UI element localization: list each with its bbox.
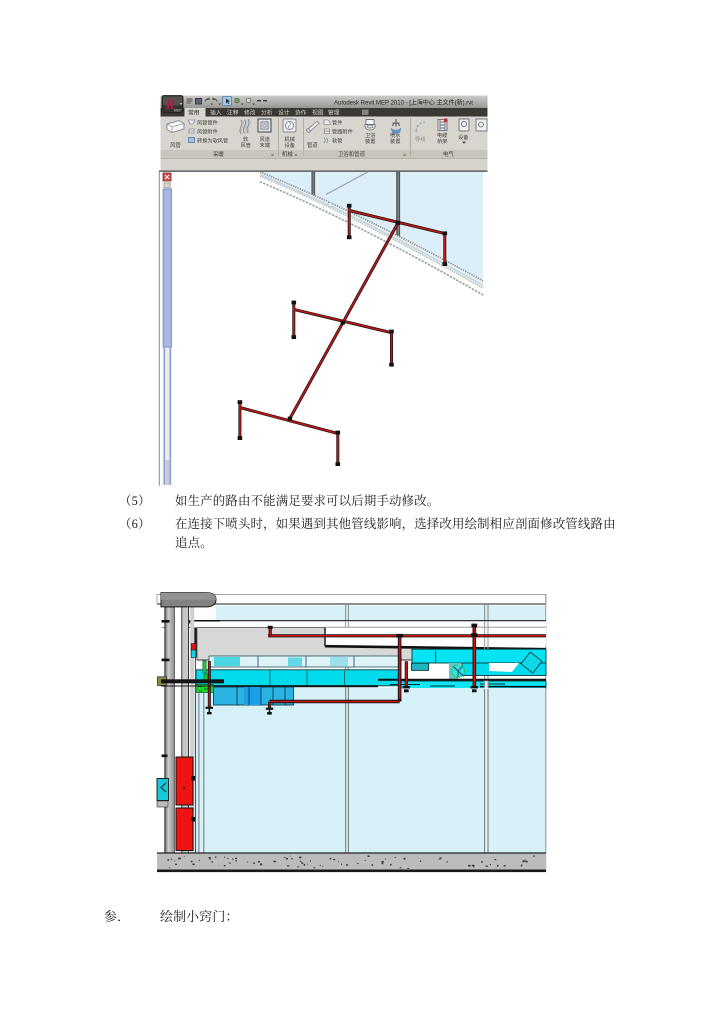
svg-text:风管: 风管 (241, 141, 251, 149)
svg-text:软管: 软管 (332, 137, 342, 145)
svg-text:管件: 管件 (332, 119, 342, 127)
svg-text:卫浴: 卫浴 (365, 131, 376, 139)
svg-text:末端: 末端 (260, 141, 270, 149)
svg-text:采暖: 采暖 (213, 150, 224, 158)
svg-text:管道: 管道 (307, 141, 318, 149)
svg-text:协作: 协作 (295, 109, 307, 117)
svg-text:机械: 机械 (282, 150, 293, 158)
svg-text:软: 软 (243, 135, 248, 143)
svg-text:管理: 管理 (328, 109, 340, 117)
svg-text:电缆: 电缆 (437, 131, 447, 139)
svg-text:管路附件: 管路附件 (332, 128, 353, 136)
svg-text:»: » (403, 153, 406, 159)
svg-text:装置: 装置 (365, 137, 375, 145)
svg-text:修改: 修改 (244, 109, 256, 117)
svg-text:桥架: 桥架 (437, 137, 447, 145)
svg-text:电气: 电气 (443, 150, 454, 158)
svg-text:卫浴和管道: 卫浴和管道 (338, 150, 366, 158)
svg-text:视图: 视图 (312, 109, 324, 117)
svg-text:风道: 风道 (260, 135, 270, 143)
svg-text:装置: 装置 (390, 137, 400, 145)
svg-text:»: » (295, 153, 298, 159)
svg-text:导线: 导线 (415, 135, 425, 143)
svg-text:注释: 注释 (227, 109, 239, 117)
svg-text:喷水: 喷水 (390, 131, 401, 139)
svg-text:设备: 设备 (458, 133, 469, 141)
svg-text:»: » (271, 153, 274, 159)
svg-text:插入: 插入 (210, 109, 222, 117)
svg-text:风管: 风管 (170, 141, 181, 149)
svg-text:分析: 分析 (261, 109, 273, 117)
svg-text:常用: 常用 (188, 109, 200, 117)
svg-text:设备: 设备 (285, 141, 296, 149)
svg-text:设计: 设计 (278, 109, 290, 117)
svg-text:机械: 机械 (285, 135, 295, 143)
svg-text:风管管件: 风管管件 (197, 119, 218, 127)
svg-text:MEP: MEP (174, 109, 182, 113)
svg-text:Autodesk Revit MEP 2010 - [上海中: Autodesk Revit MEP 2010 - [上海中心 主文件(新).r… (334, 98, 473, 106)
svg-text:风管附件: 风管附件 (197, 128, 218, 136)
svg-text:转换为软风管: 转换为软风管 (197, 137, 228, 145)
